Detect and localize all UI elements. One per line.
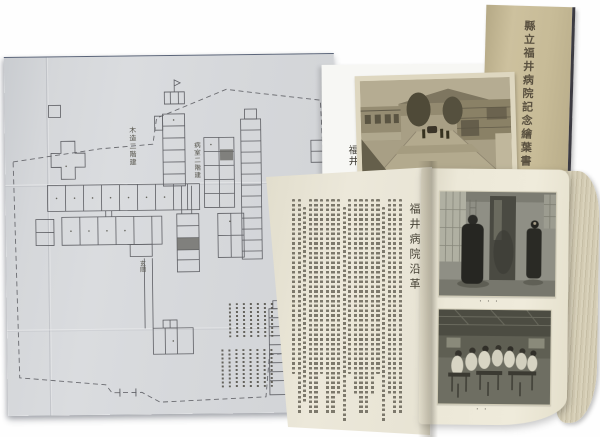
photo-bottom-caption: ・・ <box>475 406 491 413</box>
cover-card-title: 縣立福井病院記念繪葉書 <box>517 20 537 169</box>
open-booklet: 福井病院沿革 <box>262 155 598 437</box>
photo-top-caption: ・・・ <box>478 298 502 305</box>
booklet-right-page: ・・・ <box>419 168 570 426</box>
photo-scene: 木造二階建 病室二階建 玄關 福井 縣立福井病院記念繪葉書 <box>0 0 600 437</box>
plan-label-ward-two-story: 病室二階建 <box>192 140 201 179</box>
photo-classroom <box>437 308 552 405</box>
plan-label-wood-two-story: 木造二階建 <box>129 126 138 167</box>
booklet-left-page: 福井病院沿革 <box>262 163 432 435</box>
room-marks <box>55 118 232 343</box>
body-text-columns <box>292 199 402 423</box>
booklet-gutter <box>418 161 438 437</box>
photo-boiler-room <box>438 190 557 297</box>
shaded-rooms <box>176 149 234 250</box>
